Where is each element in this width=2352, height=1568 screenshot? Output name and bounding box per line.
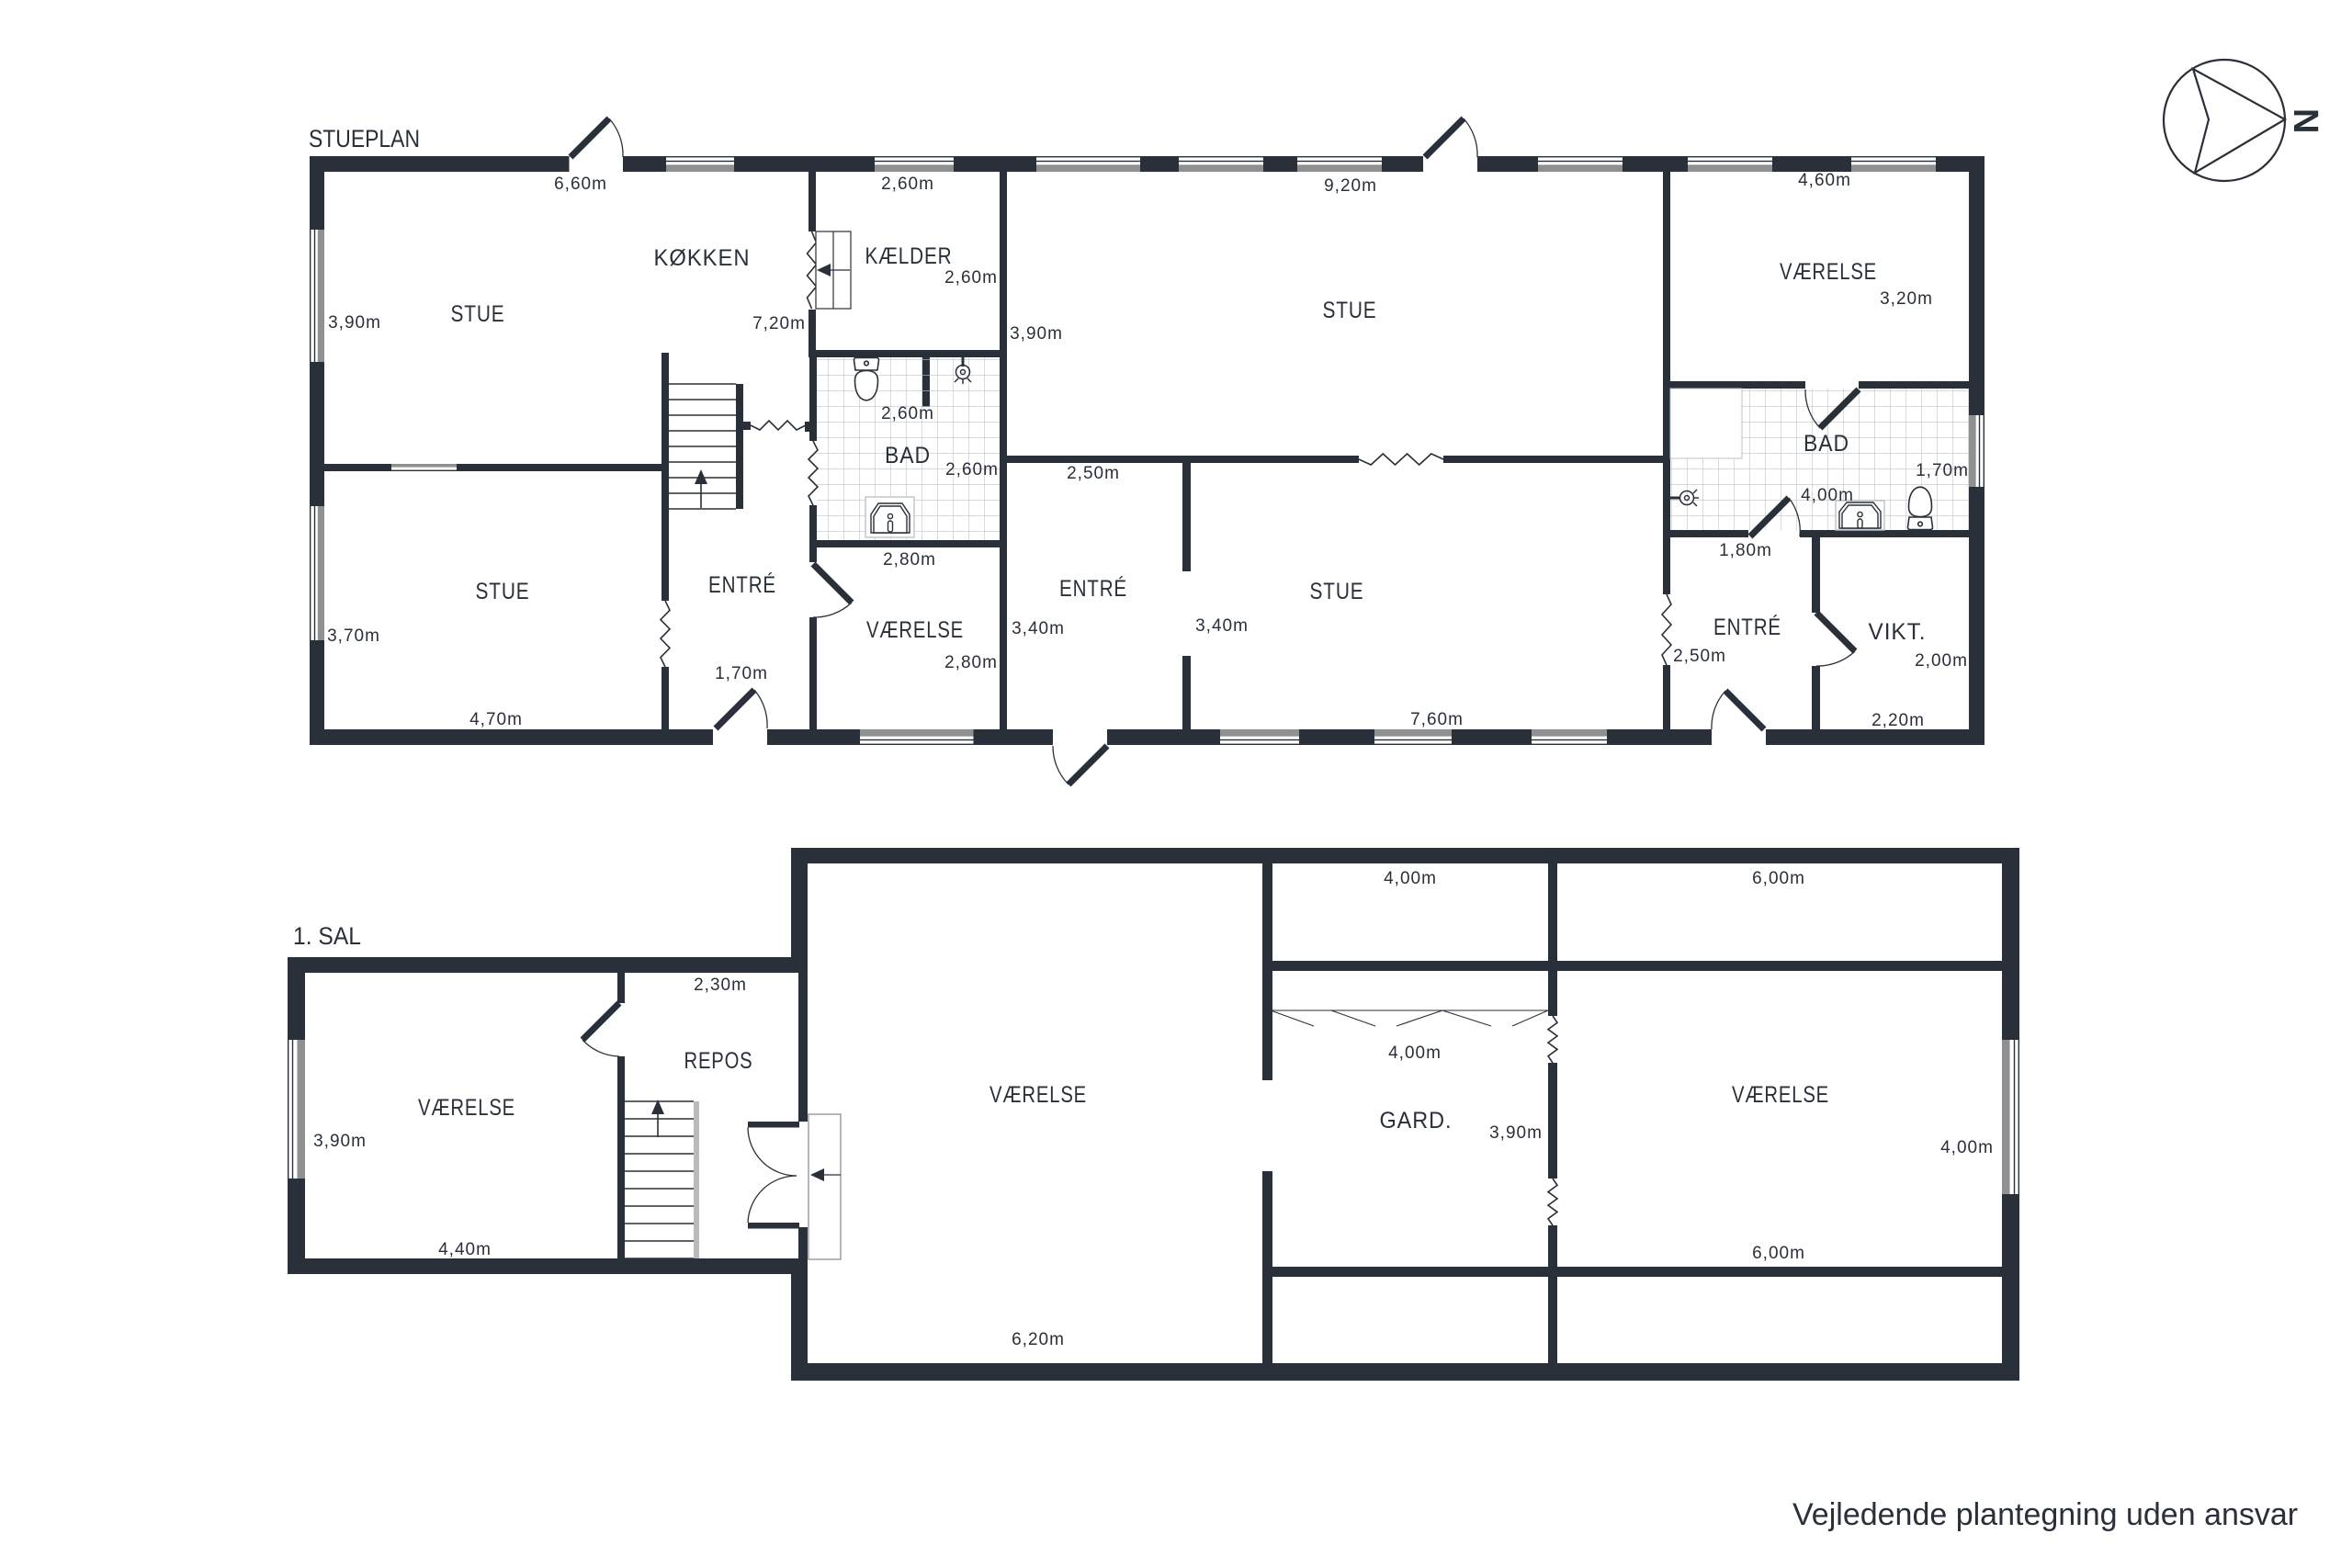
svg-text:2,50m: 2,50m — [1673, 647, 1726, 666]
svg-text:2,30m: 2,30m — [694, 976, 747, 995]
svg-text:3,90m: 3,90m — [1489, 1123, 1543, 1143]
svg-text:1,70m: 1,70m — [715, 664, 768, 683]
svg-text:3,90m: 3,90m — [313, 1132, 367, 1151]
svg-text:Vejledende plantegning uden an: Vejledende plantegning uden ansvar — [1792, 1497, 2298, 1532]
svg-text:STUE: STUE — [1323, 298, 1377, 323]
svg-text:VÆRELSE: VÆRELSE — [989, 1082, 1087, 1108]
svg-text:STUE: STUE — [476, 579, 530, 604]
svg-text:VÆRELSE: VÆRELSE — [866, 617, 964, 643]
svg-text:6,00m: 6,00m — [1752, 869, 1805, 888]
svg-text:3,40m: 3,40m — [1012, 619, 1065, 638]
svg-text:6,00m: 6,00m — [1752, 1244, 1805, 1263]
svg-text:2,60m: 2,60m — [944, 268, 998, 288]
svg-text:4,70m: 4,70m — [469, 710, 523, 729]
svg-text:GARD.: GARD. — [1380, 1108, 1453, 1134]
svg-text:REPOS: REPOS — [684, 1048, 753, 1074]
svg-text:STUE: STUE — [451, 301, 505, 327]
svg-text:3,90m: 3,90m — [1010, 324, 1063, 344]
svg-text:2,50m: 2,50m — [1067, 464, 1120, 483]
svg-text:2,00m: 2,00m — [1915, 651, 1968, 671]
svg-text:1,70m: 1,70m — [1916, 461, 1969, 480]
svg-text:4,40m: 4,40m — [438, 1240, 492, 1259]
svg-text:VIKT.: VIKT. — [1869, 619, 1927, 645]
svg-text:KØKKEN: KØKKEN — [654, 245, 751, 271]
svg-text:9,20m: 9,20m — [1324, 176, 1377, 196]
svg-text:BAD: BAD — [885, 443, 931, 468]
svg-text:4,00m: 4,00m — [1940, 1138, 1994, 1157]
svg-text:4,00m: 4,00m — [1388, 1043, 1442, 1063]
svg-text:3,90m: 3,90m — [328, 313, 381, 333]
svg-text:4,60m: 4,60m — [1798, 171, 1851, 190]
svg-text:3,20m: 3,20m — [1880, 289, 1933, 309]
svg-text:7,60m: 7,60m — [1410, 710, 1464, 729]
svg-text:2,60m: 2,60m — [945, 460, 999, 479]
svg-text:VÆRELSE: VÆRELSE — [1780, 259, 1877, 285]
svg-text:2,20m: 2,20m — [1871, 711, 1925, 730]
svg-text:4,00m: 4,00m — [1801, 486, 1854, 505]
svg-text:VÆRELSE: VÆRELSE — [418, 1095, 515, 1121]
svg-text:6,60m: 6,60m — [554, 175, 607, 194]
svg-text:1. SAL: 1. SAL — [293, 922, 361, 950]
svg-text:3,40m: 3,40m — [1195, 616, 1249, 636]
svg-text:6,20m: 6,20m — [1012, 1330, 1065, 1349]
svg-text:KÆLDER: KÆLDER — [865, 243, 953, 269]
svg-text:ENTRÉ: ENTRÉ — [708, 571, 776, 598]
svg-text:2,80m: 2,80m — [944, 653, 998, 672]
svg-text:4,00m: 4,00m — [1384, 869, 1437, 888]
svg-text:N: N — [2286, 108, 2324, 133]
svg-text:2,60m: 2,60m — [881, 175, 934, 194]
svg-text:3,70m: 3,70m — [327, 626, 380, 646]
svg-text:1,80m: 1,80m — [1719, 541, 1772, 560]
svg-text:ENTRÉ: ENTRÉ — [1059, 575, 1127, 602]
svg-text:STUEPLAN: STUEPLAN — [309, 125, 420, 152]
svg-text:VÆRELSE: VÆRELSE — [1732, 1082, 1829, 1108]
svg-text:2,80m: 2,80m — [883, 550, 936, 570]
svg-text:BAD: BAD — [1804, 431, 1849, 457]
svg-text:2,60m: 2,60m — [881, 404, 934, 423]
svg-text:7,20m: 7,20m — [752, 314, 806, 333]
svg-text:ENTRÉ: ENTRÉ — [1713, 614, 1781, 640]
svg-text:STUE: STUE — [1310, 579, 1364, 604]
